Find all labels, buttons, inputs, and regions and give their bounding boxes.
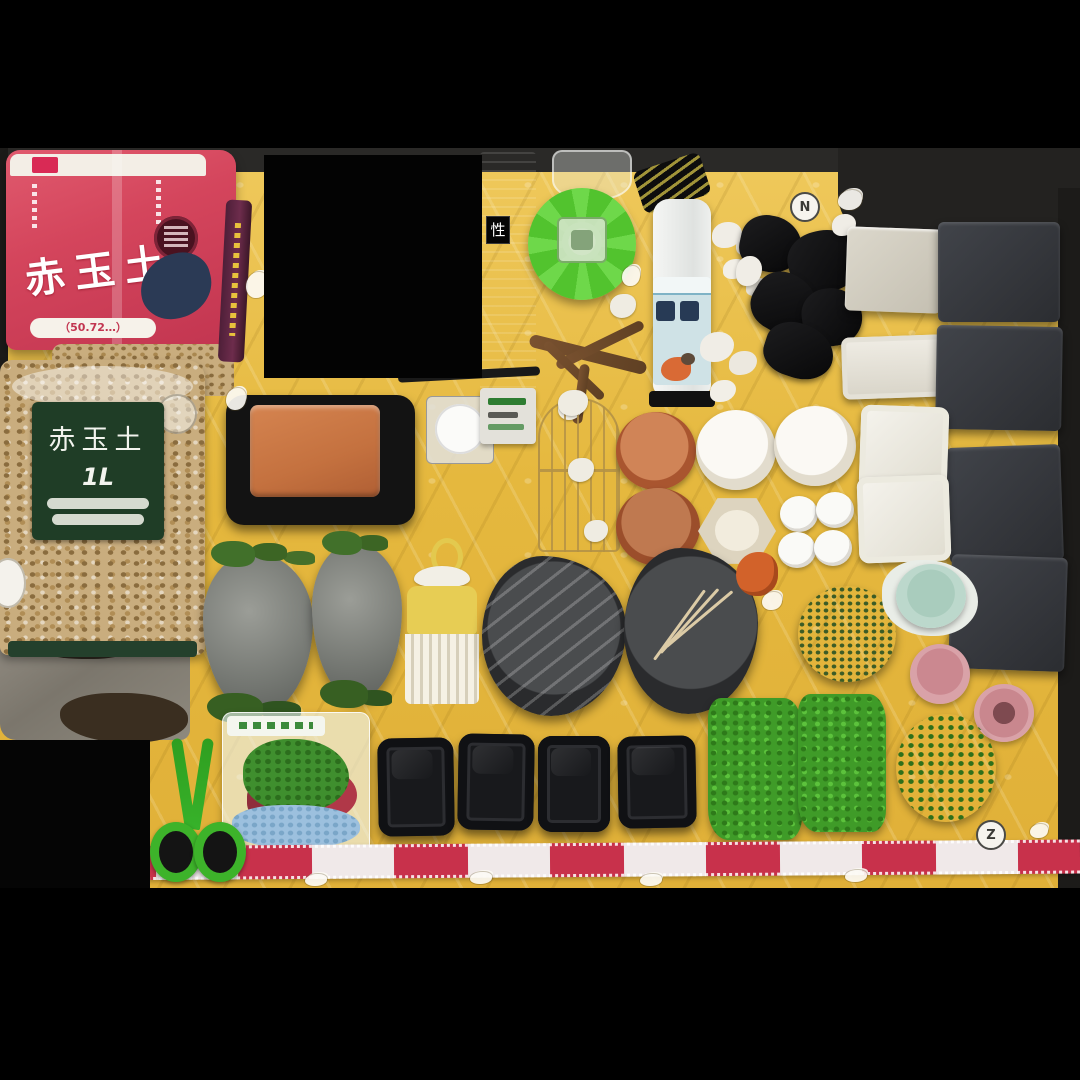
bird-art — [661, 357, 691, 381]
white-bottle — [645, 173, 723, 409]
terracotta-tray-in-black-tray — [226, 395, 415, 525]
moss-rock — [312, 543, 402, 700]
bag-crimp — [8, 641, 197, 657]
blanket-character — [640, 874, 662, 886]
bag-small-print — [156, 180, 161, 226]
plant-foliage — [243, 739, 348, 813]
terracotta-saucer — [616, 412, 696, 490]
black-feeding-tray — [538, 736, 610, 832]
small-white-lid — [814, 530, 852, 566]
photo-area: 赤玉土 （50.72…） 赤玉土 1L 性 — [0, 148, 1080, 888]
white-pebbles — [700, 332, 734, 362]
blanket-letter-z: Z — [976, 820, 1006, 850]
package-kanji: 性 — [486, 216, 510, 244]
dark-slate-tile — [935, 325, 1063, 431]
green-funnel-feeder — [528, 188, 636, 300]
yellow-pick-comb — [405, 538, 482, 706]
blanket-character — [470, 872, 492, 884]
orange-figurine — [736, 552, 778, 596]
mint-pot — [896, 564, 966, 628]
beige-square-tile — [845, 226, 944, 313]
blanket-character — [845, 870, 867, 882]
small-white-lid — [778, 532, 816, 568]
green-scissors — [150, 738, 238, 882]
bottle-label — [653, 277, 711, 385]
white-square-plate — [857, 474, 952, 563]
label-size: 1L — [32, 463, 164, 491]
white-round-dish — [696, 410, 776, 490]
white-round-dish — [774, 406, 856, 486]
blanket-letter-n: N — [790, 192, 820, 222]
moss-rock — [203, 553, 313, 715]
red-bag-size-text: （50.72…） — [30, 318, 156, 338]
grass-mat — [798, 694, 886, 832]
bag-small-print — [32, 184, 37, 230]
label-line — [47, 498, 150, 509]
small-white-lid — [780, 496, 818, 532]
black-feeding-tray — [617, 735, 697, 828]
grass-mat — [708, 698, 802, 840]
green-soil-label: 赤玉土 1L — [32, 402, 164, 540]
pink-pot — [910, 644, 970, 704]
blanket-character — [1030, 824, 1048, 838]
censor-block — [264, 155, 482, 378]
funnel-center — [557, 217, 607, 263]
akadama-soil-red-bag: 赤玉土 （50.72…） — [6, 150, 236, 350]
wire-birdcage-decor — [538, 398, 620, 552]
white-rect-tray — [841, 334, 947, 400]
dark-slate-tile — [946, 444, 1064, 564]
blanket-character — [762, 592, 782, 610]
small-labeled-box — [480, 388, 536, 444]
comb-handle — [407, 586, 477, 638]
artificial-plant-bag — [222, 712, 370, 856]
black-reptile-dish-wrapped — [482, 556, 626, 716]
dark-slate-tile — [938, 222, 1060, 322]
round-green-plant — [896, 714, 996, 822]
terracotta-tray — [250, 405, 380, 497]
blanket-character — [622, 266, 640, 286]
blanket-character — [305, 874, 327, 886]
label-line — [52, 514, 144, 525]
plant-bag-label — [227, 716, 325, 736]
comb-bow — [414, 566, 470, 588]
comb-teeth — [405, 634, 479, 704]
screenshot: 赤玉土 （50.72…） 赤玉土 1L 性 — [0, 0, 1080, 1080]
brand-logo — [32, 157, 58, 173]
black-feeding-tray — [457, 733, 535, 830]
label-title: 赤玉土 — [32, 418, 164, 457]
bottle-base — [649, 391, 715, 407]
small-white-lid — [816, 492, 854, 528]
black-feeding-tray — [377, 737, 455, 836]
dark-corner — [0, 740, 150, 888]
blue-gravel — [232, 805, 360, 848]
akadama-soil-clear-bag: 赤玉土 1L — [0, 360, 205, 655]
